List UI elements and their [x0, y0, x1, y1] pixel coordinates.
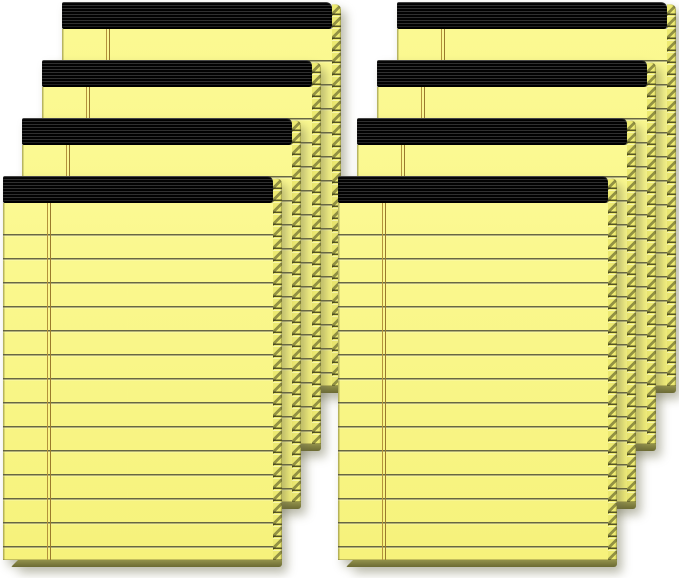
legal-pad [3, 176, 283, 567]
pad-black-binding [397, 2, 667, 29]
pad-black-binding [22, 118, 292, 145]
pad-right-paper-edge [608, 178, 617, 563]
pad-paper-face [338, 203, 608, 560]
pad-black-binding [377, 60, 647, 87]
pad-right-paper-edge [647, 62, 656, 447]
legal-pad [338, 176, 618, 567]
ruled-lines [338, 234, 608, 557]
pad-black-binding [62, 2, 332, 29]
pad-right-paper-edge [273, 178, 282, 563]
pad-right-paper-edge [627, 120, 636, 505]
pad-black-binding [338, 176, 608, 203]
pad-right-paper-edge [312, 62, 321, 447]
pad-paper-face [3, 203, 273, 560]
pad-black-binding [357, 118, 627, 145]
pad-bottom-paper-edge [11, 560, 282, 567]
pad-right-paper-edge [667, 4, 676, 389]
margin-line [47, 203, 52, 560]
legal-pads-product-photo [0, 0, 679, 578]
pad-black-binding [42, 60, 312, 87]
pad-bottom-paper-edge [346, 560, 617, 567]
pad-right-paper-edge [292, 120, 301, 505]
ruled-lines [3, 234, 273, 557]
margin-line [382, 203, 387, 560]
pad-black-binding [3, 176, 273, 203]
